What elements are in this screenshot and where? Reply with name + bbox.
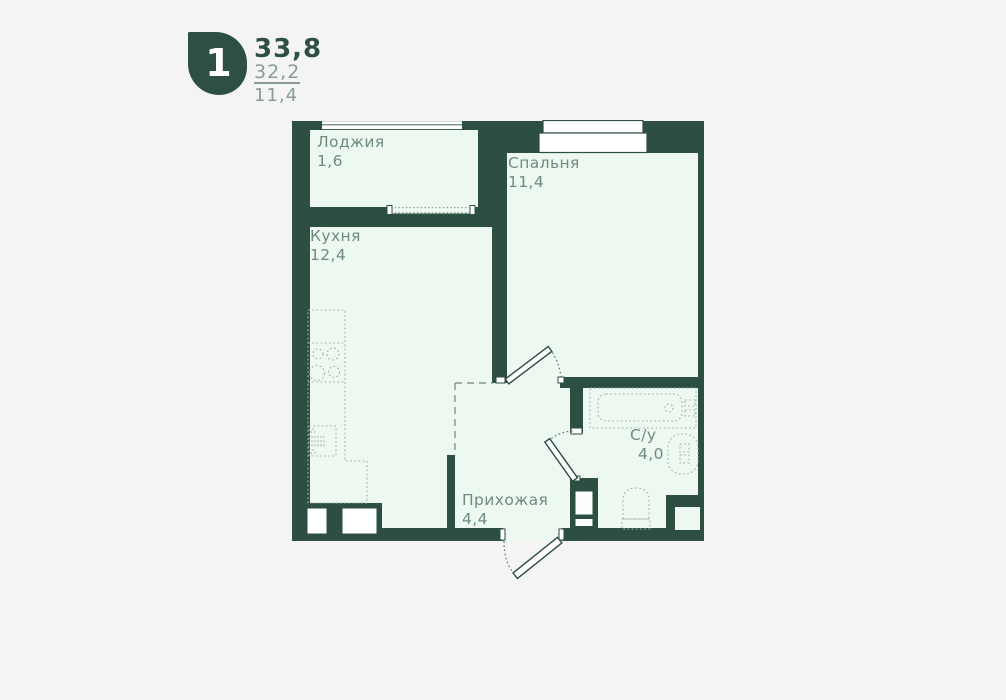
apartment-badge: 1 33,8 32,2 11,4 — [188, 32, 322, 105]
kitchen-window — [302, 503, 382, 541]
area-figures: 33,8 32,2 11,4 — [254, 32, 322, 105]
entrance-opening — [503, 528, 562, 541]
bedroom-window — [539, 121, 647, 153]
loggia-floor — [310, 130, 478, 207]
floor-plan: Лоджия 1,6 Спальня 11,4 Кухня 12,4 Прихо… — [292, 120, 704, 590]
bedroom-floor — [507, 153, 698, 377]
hallway-floor — [455, 383, 560, 528]
page: { "header": { "rooms_count": "1", "area_… — [0, 0, 1006, 700]
hallway-wall-stub — [447, 455, 455, 528]
rooms-count: 1 — [205, 44, 231, 82]
leaf-icon: 1 — [188, 32, 247, 95]
kitchen-area-figure: 11,4 — [254, 87, 322, 105]
floor-plan-drawing — [292, 120, 704, 590]
total-area: 33,8 — [254, 36, 322, 62]
loggia-window — [322, 121, 462, 130]
living-area: 32,2 — [254, 63, 300, 84]
